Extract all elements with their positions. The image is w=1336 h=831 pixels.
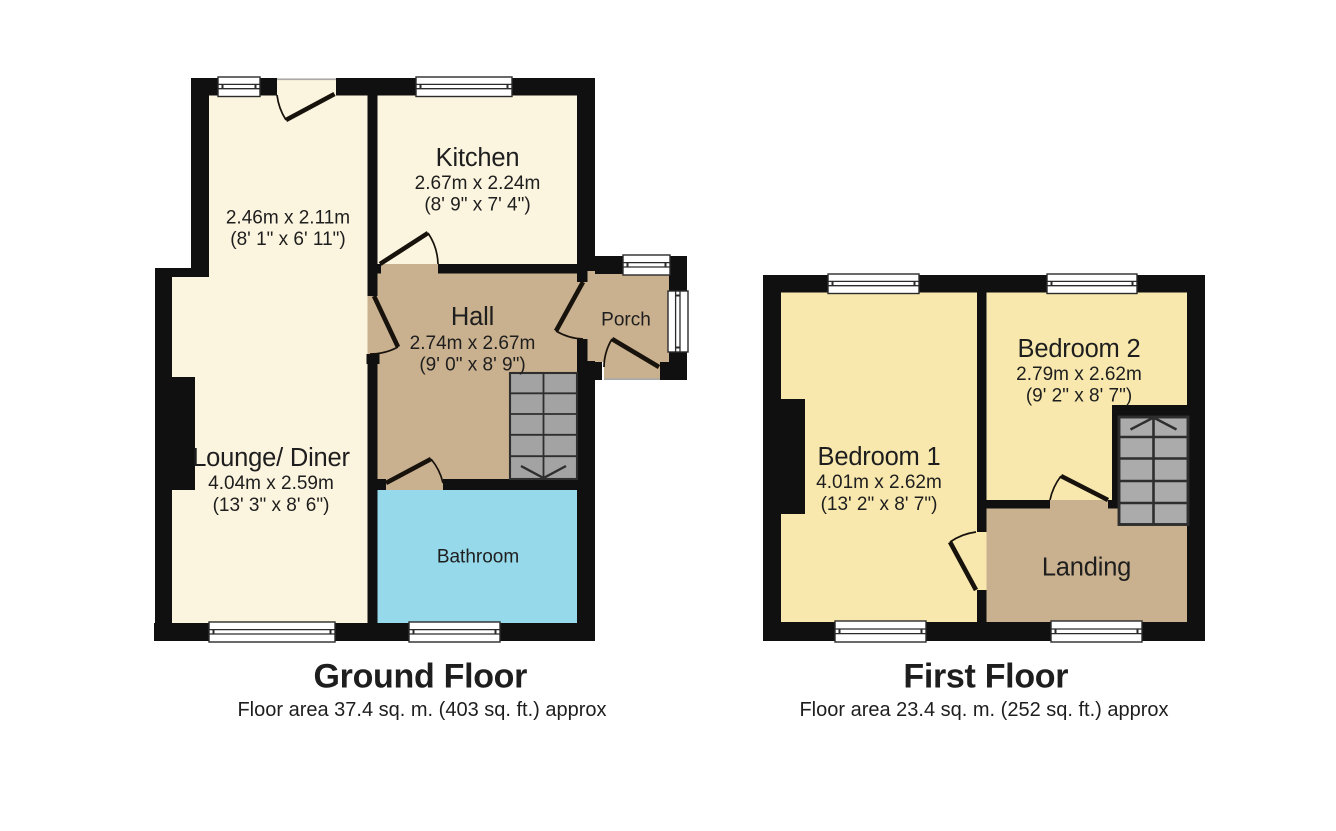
- svg-text:2.74m x 2.67m: 2.74m x 2.67m: [410, 333, 536, 354]
- svg-text:2.67m x 2.24m: 2.67m x 2.24m: [415, 173, 541, 194]
- svg-text:Kitchen: Kitchen: [436, 144, 520, 172]
- svg-text:(8' 1" x 6' 11"): (8' 1" x 6' 11"): [230, 229, 345, 250]
- svg-text:(13' 2" x 8' 7"): (13' 2" x 8' 7"): [821, 494, 938, 515]
- svg-text:Bedroom 2: Bedroom 2: [1018, 335, 1141, 363]
- svg-text:(9' 0" x 8' 9"): (9' 0" x 8' 9"): [419, 355, 525, 376]
- svg-text:Ground Floor: Ground Floor: [314, 658, 528, 696]
- svg-text:4.04m x 2.59m: 4.04m x 2.59m: [208, 473, 334, 494]
- svg-text:Floor area 23.4 sq. m. (252 sq: Floor area 23.4 sq. m. (252 sq. ft.) app…: [799, 699, 1168, 721]
- svg-text:Bathroom: Bathroom: [437, 547, 519, 568]
- svg-text:2.46m x 2.11m: 2.46m x 2.11m: [226, 208, 350, 229]
- svg-text:Bedroom 1: Bedroom 1: [818, 443, 941, 471]
- svg-text:First Floor: First Floor: [903, 658, 1068, 696]
- svg-text:Hall: Hall: [451, 303, 494, 331]
- svg-text:4.01m x 2.62m: 4.01m x 2.62m: [816, 472, 942, 493]
- svg-text:(13' 3" x 8' 6"): (13' 3" x 8' 6"): [213, 495, 330, 516]
- svg-text:Landing: Landing: [1042, 554, 1131, 582]
- svg-text:2.79m x 2.62m: 2.79m x 2.62m: [1016, 364, 1142, 385]
- svg-text:Lounge/ Diner: Lounge/ Diner: [192, 444, 350, 472]
- svg-text:Floor area 37.4 sq. m. (403 sq: Floor area 37.4 sq. m. (403 sq. ft.) app…: [237, 699, 606, 721]
- svg-text:Porch: Porch: [601, 310, 651, 331]
- svg-text:(8' 9" x 7' 4"): (8' 9" x 7' 4"): [424, 195, 530, 216]
- svg-text:(9' 2" x 8' 7"): (9' 2" x 8' 7"): [1026, 386, 1132, 407]
